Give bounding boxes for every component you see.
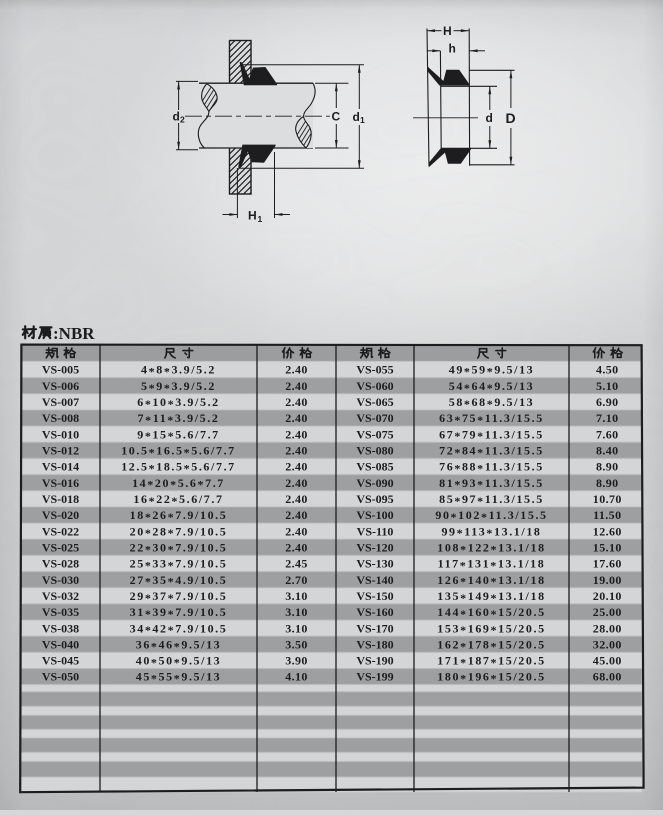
svg-text:8.40: 8.40 xyxy=(596,444,619,458)
svg-text:76*88*11.3/15.5: 76*88*11.3/15.5 xyxy=(439,460,544,476)
svg-text:VS-025: VS-025 xyxy=(42,540,79,554)
svg-text:72*84*11.3/15.5: 72*84*11.3/15.5 xyxy=(439,444,544,460)
svg-text:VS-032: VS-032 xyxy=(42,589,79,603)
svg-text:VS-014: VS-014 xyxy=(42,460,79,474)
svg-text:3.90: 3.90 xyxy=(285,654,308,668)
svg-text:8.90: 8.90 xyxy=(596,476,619,490)
svg-text:135*149*13.1/18: 135*149*13.1/18 xyxy=(437,589,545,605)
svg-text:d: d xyxy=(353,110,360,124)
svg-text:VS-038: VS-038 xyxy=(42,621,79,635)
svg-text:11.50: 11.50 xyxy=(593,508,621,522)
svg-text:2.40: 2.40 xyxy=(285,540,308,554)
svg-text:VS-060: VS-060 xyxy=(356,379,393,393)
svg-text:28.00: 28.00 xyxy=(593,621,622,635)
svg-text:27*35*4.9/10.5: 27*35*4.9/10.5 xyxy=(130,573,228,589)
svg-text::NBR: :NBR xyxy=(53,324,95,343)
svg-text:90*102*11.3/15.5: 90*102*11.3/15.5 xyxy=(435,508,547,524)
svg-text:VS-065: VS-065 xyxy=(356,395,393,409)
svg-text:2.40: 2.40 xyxy=(285,492,308,506)
svg-text:10.70: 10.70 xyxy=(593,492,622,506)
svg-text:12.60: 12.60 xyxy=(593,524,622,538)
svg-text:17.60: 17.60 xyxy=(593,557,622,571)
svg-text:d: d xyxy=(486,111,493,125)
svg-text:H: H xyxy=(443,24,452,38)
svg-text:VS-050: VS-050 xyxy=(42,670,79,684)
svg-text:2: 2 xyxy=(180,115,185,125)
svg-text:4.10: 4.10 xyxy=(285,670,308,684)
svg-text:VS-085: VS-085 xyxy=(356,460,393,474)
svg-text:81*93*11.3/15.5: 81*93*11.3/15.5 xyxy=(439,476,544,492)
svg-text:6*10*3.9/5.2: 6*10*3.9/5.2 xyxy=(137,395,220,411)
svg-text:2.40: 2.40 xyxy=(285,395,308,409)
svg-text:63*75*11.3/15.5: 63*75*11.3/15.5 xyxy=(439,411,544,427)
svg-text:9*15*5.6/7.7: 9*15*5.6/7.7 xyxy=(137,427,220,443)
svg-text:29*37*7.9/10.5: 29*37*7.9/10.5 xyxy=(130,589,228,605)
svg-text:108*122*13.1/18: 108*122*13.1/18 xyxy=(437,540,545,556)
svg-text:VS-022: VS-022 xyxy=(42,524,79,538)
svg-text:VS-008: VS-008 xyxy=(42,411,79,425)
svg-text:6.90: 6.90 xyxy=(596,395,619,409)
svg-text:99*113*13.1/18: 99*113*13.1/18 xyxy=(441,524,541,540)
svg-text:VS-080: VS-080 xyxy=(356,444,393,458)
svg-text:VS-012: VS-012 xyxy=(42,444,79,458)
svg-text:VS-005: VS-005 xyxy=(42,363,79,377)
svg-text:VS-020: VS-020 xyxy=(42,508,79,522)
svg-text:VS-040: VS-040 xyxy=(42,637,79,651)
svg-text:10.5*16.5*5.6/7.7: 10.5*16.5*5.6/7.7 xyxy=(121,444,236,460)
svg-text:126*140*13.1/18: 126*140*13.1/18 xyxy=(437,573,545,589)
svg-text:7.60: 7.60 xyxy=(596,427,619,441)
svg-text:VS-180: VS-180 xyxy=(356,637,393,651)
svg-text:68.00: 68.00 xyxy=(593,670,622,684)
svg-text:3.50: 3.50 xyxy=(285,637,308,651)
svg-text:VS-028: VS-028 xyxy=(42,557,79,571)
svg-text:15.10: 15.10 xyxy=(593,540,622,554)
svg-text:3.10: 3.10 xyxy=(285,621,308,635)
svg-text:25.00: 25.00 xyxy=(593,605,622,619)
svg-text:49*59*9.5/13: 49*59*9.5/13 xyxy=(449,363,535,379)
svg-text:32.00: 32.00 xyxy=(593,637,622,651)
svg-text:2.40: 2.40 xyxy=(285,476,308,490)
svg-text:VS-007: VS-007 xyxy=(42,395,79,409)
svg-text:3.10: 3.10 xyxy=(285,605,308,619)
svg-text:22*30*7.9/10.5: 22*30*7.9/10.5 xyxy=(130,540,228,556)
svg-text:d: d xyxy=(173,110,180,124)
svg-text:45.00: 45.00 xyxy=(593,654,622,668)
svg-text:2.40: 2.40 xyxy=(285,363,308,377)
svg-text:18*26*7.9/10.5: 18*26*7.9/10.5 xyxy=(130,508,228,524)
svg-text:VS-030: VS-030 xyxy=(42,573,79,587)
svg-text:7*11*3.9/5.2: 7*11*3.9/5.2 xyxy=(138,411,220,427)
svg-text:VS-140: VS-140 xyxy=(356,573,393,587)
svg-text:36*46*9.5/13: 36*46*9.5/13 xyxy=(136,637,222,653)
svg-text:C: C xyxy=(332,110,341,124)
svg-text:VS-130: VS-130 xyxy=(356,557,393,571)
svg-text:VS-150: VS-150 xyxy=(356,589,393,603)
svg-text:58*68*9.5/13: 58*68*9.5/13 xyxy=(449,395,535,411)
svg-text:VS-090: VS-090 xyxy=(356,476,393,490)
svg-text:2.40: 2.40 xyxy=(285,460,308,474)
svg-text:VS-100: VS-100 xyxy=(356,508,393,522)
svg-text:19.00: 19.00 xyxy=(593,573,622,587)
svg-text:2.40: 2.40 xyxy=(285,379,308,393)
svg-text:25*33*7.9/10.5: 25*33*7.9/10.5 xyxy=(130,557,228,573)
svg-text:1: 1 xyxy=(258,214,263,224)
svg-text:VS-199: VS-199 xyxy=(356,670,393,684)
svg-text:45*55*9.5/13: 45*55*9.5/13 xyxy=(136,670,222,686)
svg-text:20*28*7.9/10.5: 20*28*7.9/10.5 xyxy=(130,524,228,540)
svg-text:31*39*7.9/10.5: 31*39*7.9/10.5 xyxy=(130,605,228,621)
svg-text:D: D xyxy=(506,110,516,126)
svg-text:2.40: 2.40 xyxy=(285,427,308,441)
svg-text:VS-016: VS-016 xyxy=(42,476,79,490)
svg-text:VS-035: VS-035 xyxy=(42,605,79,619)
svg-text:VS-190: VS-190 xyxy=(356,654,393,668)
svg-text:5.10: 5.10 xyxy=(596,379,619,393)
svg-text:40*50*9.5/13: 40*50*9.5/13 xyxy=(136,654,222,670)
svg-text:180*196*15/20.5: 180*196*15/20.5 xyxy=(437,670,545,686)
svg-text:144*160*15/20.5: 144*160*15/20.5 xyxy=(437,605,545,621)
svg-text:VS-095: VS-095 xyxy=(356,492,393,506)
svg-text:54*64*9.5/13: 54*64*9.5/13 xyxy=(449,379,535,395)
svg-text:162*178*15/20.5: 162*178*15/20.5 xyxy=(437,637,545,653)
svg-text:VS-170: VS-170 xyxy=(356,621,393,635)
svg-text:2.70: 2.70 xyxy=(285,573,308,587)
svg-text:12.5*18.5*5.6/7.7: 12.5*18.5*5.6/7.7 xyxy=(121,460,236,476)
svg-text:2.40: 2.40 xyxy=(285,411,308,425)
svg-text:1: 1 xyxy=(360,115,365,125)
svg-text:H: H xyxy=(248,209,257,223)
svg-text:171*187*15/20.5: 171*187*15/20.5 xyxy=(437,654,545,670)
svg-text:VS-045: VS-045 xyxy=(42,654,79,668)
svg-text:VS-006: VS-006 xyxy=(42,379,79,393)
svg-text:20.10: 20.10 xyxy=(593,589,622,603)
svg-text:2.40: 2.40 xyxy=(285,444,308,458)
svg-text:4.50: 4.50 xyxy=(596,363,619,377)
svg-text:14*20*5.6*7.7: 14*20*5.6*7.7 xyxy=(132,476,225,492)
svg-text:8.90: 8.90 xyxy=(596,460,619,474)
svg-text:VS-075: VS-075 xyxy=(356,427,393,441)
svg-text:VS-110: VS-110 xyxy=(357,524,394,538)
svg-text:2.40: 2.40 xyxy=(285,524,308,538)
svg-text:7.10: 7.10 xyxy=(596,411,619,425)
svg-text:117*131*13.1/18: 117*131*13.1/18 xyxy=(438,557,546,573)
svg-text:153*169*15/20.5: 153*169*15/20.5 xyxy=(437,621,545,637)
svg-text:2.40: 2.40 xyxy=(285,508,308,522)
svg-text:h: h xyxy=(449,42,456,56)
svg-text:67*79*11.3/15.5: 67*79*11.3/15.5 xyxy=(439,427,544,443)
svg-text:16*22*5.6/7.7: 16*22*5.6/7.7 xyxy=(133,492,223,508)
svg-text:VS-018: VS-018 xyxy=(42,492,79,506)
svg-text:VS-055: VS-055 xyxy=(356,363,393,377)
svg-text:4*8*3.9/5.2: 4*8*3.9/5.2 xyxy=(141,363,216,379)
svg-text:34*42*7.9/10.5: 34*42*7.9/10.5 xyxy=(130,621,228,637)
svg-text:3.10: 3.10 xyxy=(285,589,308,603)
svg-text:VS-160: VS-160 xyxy=(356,605,393,619)
svg-text:5*9*3.9/5.2: 5*9*3.9/5.2 xyxy=(141,379,216,395)
svg-text:85*97*11.3/15.5: 85*97*11.3/15.5 xyxy=(439,492,544,508)
svg-text:VS-010: VS-010 xyxy=(42,427,79,441)
svg-text:2.45: 2.45 xyxy=(285,557,308,571)
svg-text:VS-120: VS-120 xyxy=(356,540,393,554)
svg-text:VS-070: VS-070 xyxy=(356,411,393,425)
